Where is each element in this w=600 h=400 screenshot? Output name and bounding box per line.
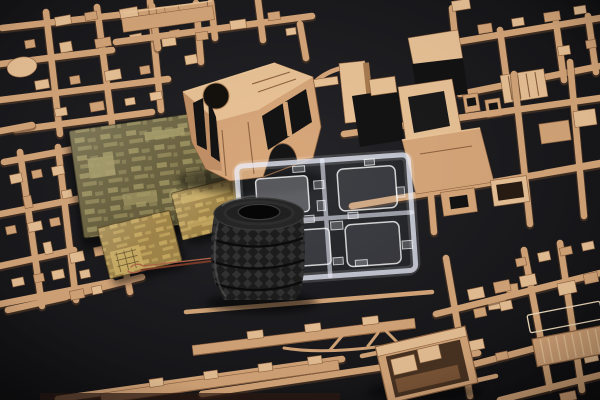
vignette: [0, 0, 600, 400]
photo-canvas: Plastic model kit contents photographed …: [0, 0, 600, 400]
model-kit-photo: Plastic model kit contents photographed …: [0, 0, 600, 400]
